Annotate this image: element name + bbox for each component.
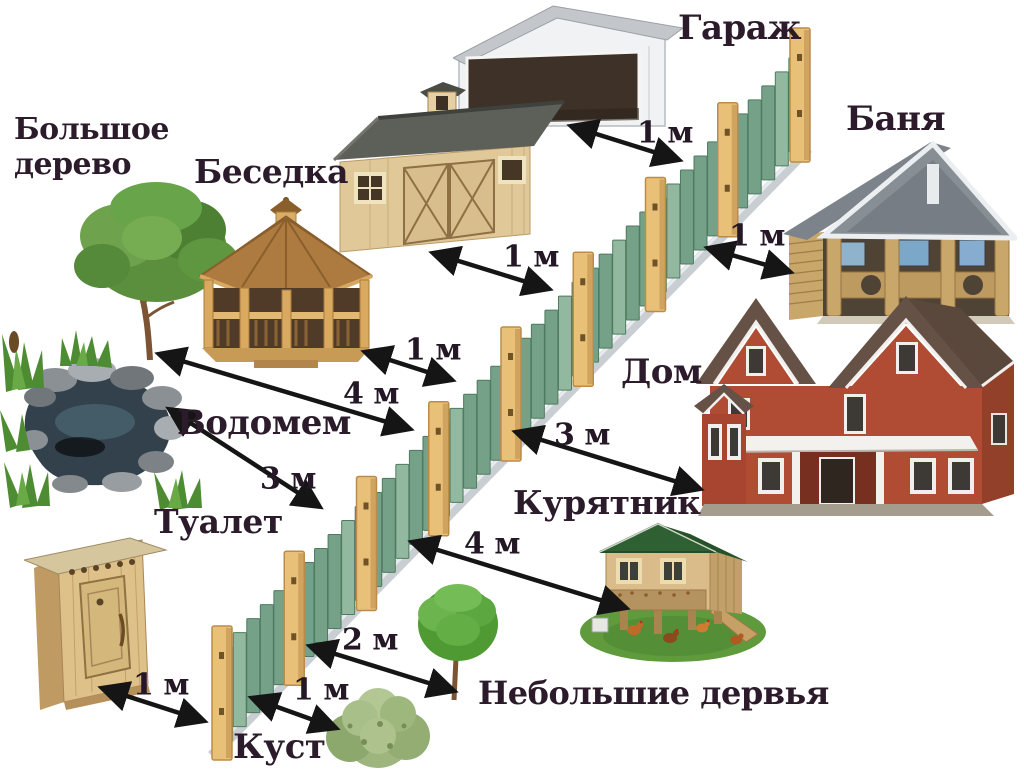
label-coop: Курятник	[513, 484, 701, 523]
distance-small-trees: 2 м	[342, 623, 398, 658]
distance-diagram: Гараж Баня Большое дерево Беседка Водоме…	[0, 0, 1024, 770]
distance-shed: 1 м	[503, 240, 559, 275]
label-banya: Баня	[846, 99, 945, 139]
distance-big-tree: 4 м	[343, 377, 399, 412]
label-bush: Куст	[233, 727, 325, 767]
distance-garage: 1 м	[637, 116, 693, 151]
distance-coop: 4 м	[464, 527, 520, 562]
distance-banya: 1 м	[729, 219, 785, 254]
label-big-tree: Большое дерево	[14, 112, 189, 183]
distance-gazebo: 1 м	[405, 333, 461, 368]
label-toilet: Туалет	[154, 503, 283, 542]
distance-toilet: 1 м	[133, 668, 189, 703]
label-pond: Водомем	[177, 403, 351, 443]
label-garage: Гараж	[678, 8, 801, 48]
label-small-trees: Небольшие дервья	[478, 675, 829, 713]
distance-house: 3 м	[554, 418, 610, 453]
label-gazebo: Беседка	[194, 153, 348, 192]
distance-pond: 3 м	[260, 462, 316, 497]
label-house: Дом	[621, 352, 702, 392]
distance-bush: 1 м	[293, 673, 349, 708]
